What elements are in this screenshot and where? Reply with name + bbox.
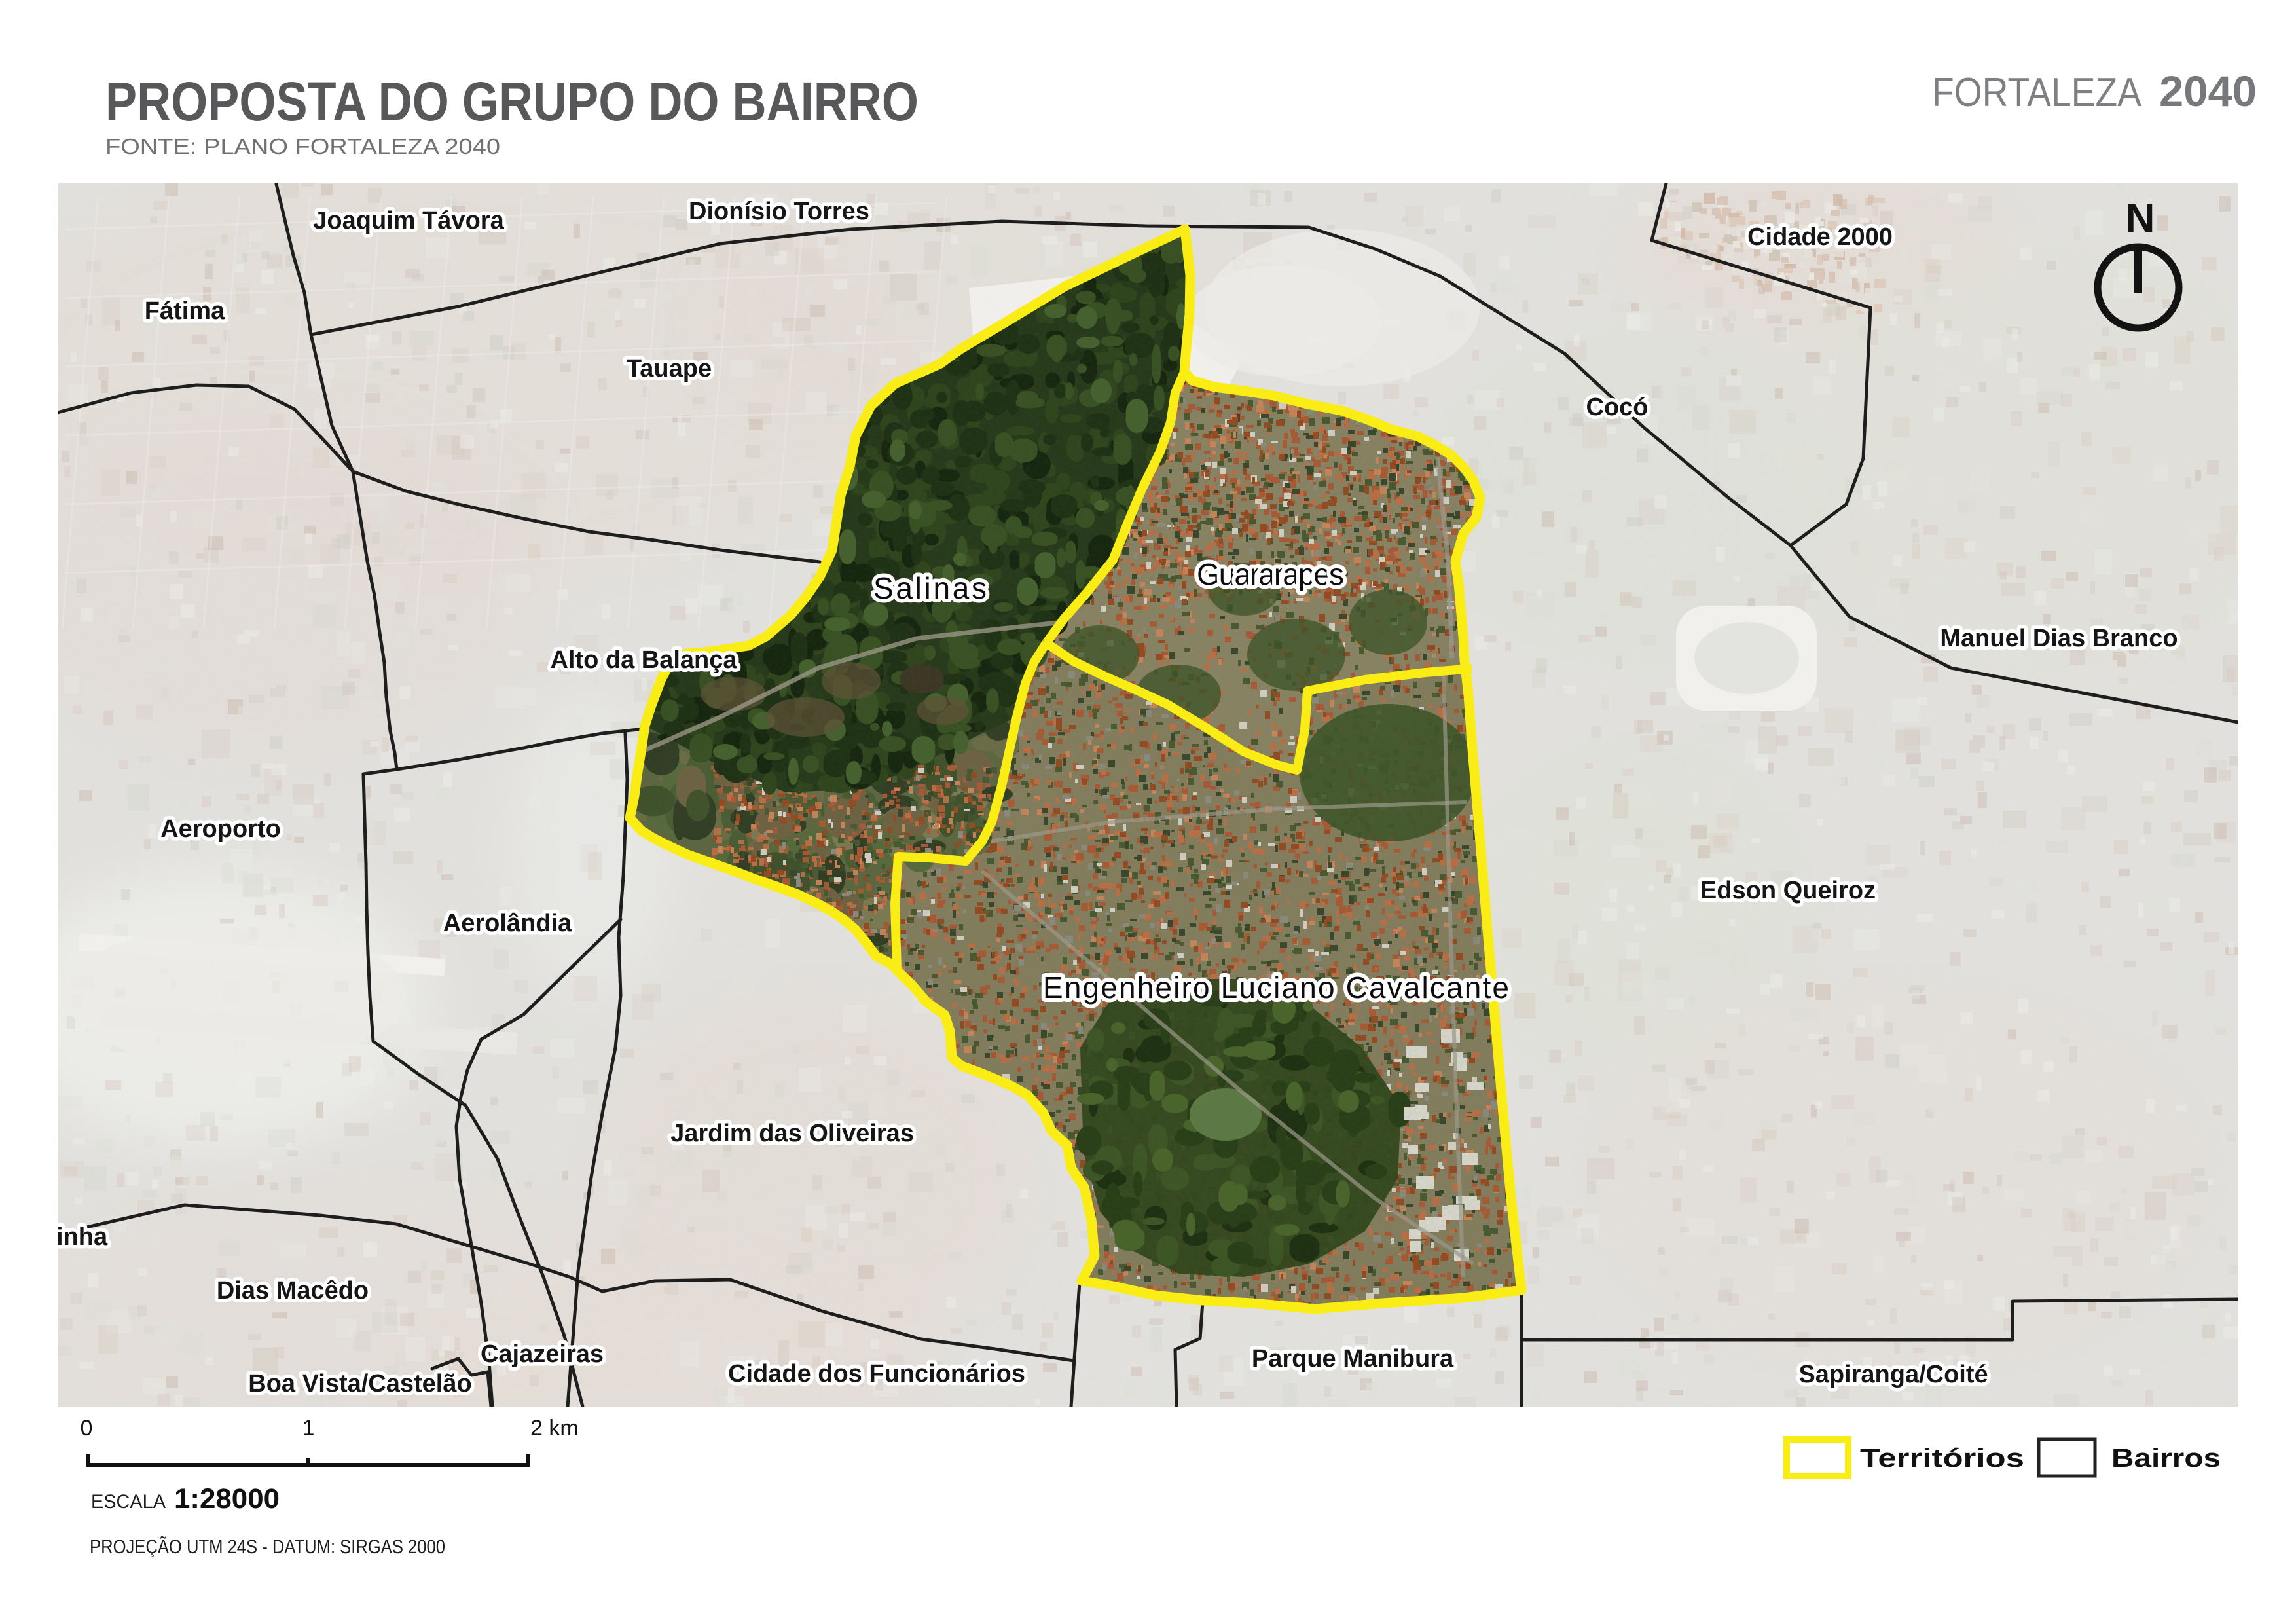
svg-text:PROJEÇÃO UTM 24S - DATUM: SIRG: PROJEÇÃO UTM 24S - DATUM: SIRGAS 2000 [90,1536,445,1558]
svg-text:2 km: 2 km [530,1416,579,1441]
svg-text:0: 0 [81,1416,93,1441]
svg-text:Joaquim Távora: Joaquim Távora [313,207,504,234]
svg-text:Manuel Dias Branco: Manuel Dias Branco [1940,625,2178,652]
svg-text:N: N [2126,196,2155,241]
svg-text:2040: 2040 [2159,67,2257,115]
svg-text:Jardim das Oliveiras: Jardim das Oliveiras [670,1120,914,1147]
svg-text:Bairros: Bairros [2111,1444,2221,1473]
svg-text:Dionísio Torres: Dionísio Torres [689,198,869,225]
svg-text:FORTALEZA: FORTALEZA [1932,70,2142,115]
svg-text:FONTE: PLANO FORTALEZA 2040: FONTE: PLANO FORTALEZA 2040 [105,134,500,158]
svg-text:Parque Manibura: Parque Manibura [1252,1345,1454,1373]
svg-text:Aeroporto: Aeroporto [160,815,281,843]
svg-text:Territórios: Territórios [1860,1444,2024,1473]
svg-text:1: 1 [302,1416,315,1441]
svg-text:ESCALA: ESCALA [91,1491,166,1513]
svg-text:Alto da Balança: Alto da Balança [550,646,737,674]
svg-text:Engenheiro Luciano Cavalcante: Engenheiro Luciano Cavalcante [1043,970,1509,1005]
svg-text:inha: inha [56,1223,108,1251]
svg-text:Edson Queiroz: Edson Queiroz [1700,877,1876,904]
svg-text:Boa Vista/Castelão: Boa Vista/Castelão [248,1370,471,1397]
svg-text:Sapiranga/Coité: Sapiranga/Coité [1798,1361,1988,1388]
svg-text:Cajazeiras: Cajazeiras [481,1340,604,1368]
svg-text:Fátima: Fátima [145,297,225,325]
svg-text:Cidade dos Funcionários: Cidade dos Funcionários [728,1360,1025,1388]
svg-text:Cidade 2000: Cidade 2000 [1747,223,1893,251]
svg-text:1:28000: 1:28000 [174,1483,280,1515]
svg-text:Dias Macêdo: Dias Macêdo [217,1277,369,1304]
svg-text:Aerolândia: Aerolândia [443,910,572,937]
svg-text:Tauape: Tauape [627,355,712,382]
svg-text:Guararapes: Guararapes [1197,557,1344,591]
svg-text:Cocó: Cocó [1586,394,1649,421]
svg-text:PROPOSTA DO GRUPO DO BAIRRO: PROPOSTA DO GRUPO DO BAIRRO [105,71,919,132]
